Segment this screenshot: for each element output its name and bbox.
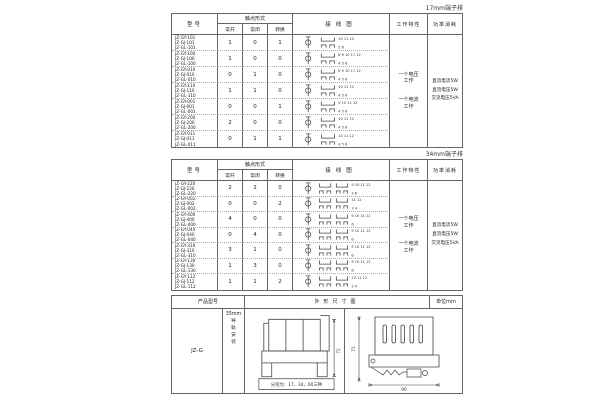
model-cell: JZ-GY-200JZ-GJ-200JZ-GL-200 (172, 115, 218, 131)
wiring-cell: 8 9 10 11 124 5 6 (293, 67, 390, 83)
wiring-cell: 8 9 10 11 124 5 6 (293, 51, 390, 67)
dimension-text: 3 6 (351, 191, 357, 195)
dimension-text: 10 11 12 (338, 117, 354, 121)
model-cell: JZ-GY-101JZ-GJ-101JZ-GL-101 (172, 35, 218, 51)
model-cell: JZ-GY-010JZ-GJ-010JZ-GL-010 (172, 67, 218, 83)
contact-form-header: 触点形式 (218, 160, 293, 170)
wiring-diagram-svg: 9 10 11 126 (294, 212, 389, 227)
contact-count-no: 3 (218, 243, 243, 259)
coil-icon (305, 37, 310, 48)
wiring-cell: 9 10 11 124 5 6 (293, 99, 390, 115)
contact-count-nc: 1 (243, 131, 268, 147)
model-cell: JZ-GY-040JZ-GJ-040JZ-GL-040 (172, 228, 218, 244)
contact-count-co: 1 (268, 99, 293, 115)
unit-header: 单位mm (430, 296, 462, 309)
contact-count-no: 0 (218, 228, 243, 244)
model-column-header: 型号 (172, 160, 218, 181)
mount-label-char: 导 (231, 318, 236, 325)
model-column-header: 型号 (172, 14, 218, 35)
model-number: JZ-GL-100 (175, 61, 196, 66)
dimension-text: 9 10 11 12 (351, 214, 370, 218)
screw-icon (371, 359, 375, 363)
contact-count-no: 2 (218, 181, 243, 197)
changeover-header: 转换 (268, 170, 293, 181)
dimension-text: 10 11 12 (338, 85, 354, 89)
model-cell: JZ-GY-130JZ-GJ-130JZ-GL-130 (172, 259, 218, 275)
coil-icon (305, 214, 310, 225)
page-content: 17mm端子排 型号触点形式常开常闭转换接线图工作特性功率消耗JZ-GY-101… (171, 4, 463, 394)
front-view-svg: 72分别为：17、34、60三种 (245, 309, 344, 393)
wiring-cell: 10 11 124 5 6 (293, 83, 390, 99)
wiring-diagram-header: 接线图 (293, 14, 390, 35)
contact-count-nc: 1 (243, 274, 268, 290)
contact-count-nc: 0 (243, 99, 268, 115)
model-cell: JZ-GY-310JZ-GJ-310JZ-GL-310 (172, 243, 218, 259)
wiring-cell: 9 10 11 126 (293, 243, 390, 259)
latch-screw-icon (423, 370, 428, 375)
coil-icon (305, 117, 310, 128)
contact-count-nc: 4 (243, 228, 268, 244)
contact-count-no: 1 (218, 259, 243, 275)
contact-count-co: 0 (268, 67, 293, 83)
work-characteristic-item: 一个电流工作 (399, 241, 419, 255)
power-consumption-item: 直流电压5W (432, 87, 458, 96)
contact-count-co: 0 (268, 51, 293, 67)
wiring-diagram-svg: 11 123 4 (294, 197, 389, 212)
model-number: JZ-GL-130 (175, 268, 196, 273)
dimension-text: 3 4 (351, 207, 357, 211)
wiring-diagram-svg: 10 11 124 5 6 (294, 83, 389, 98)
contact-count-co: 0 (268, 212, 293, 228)
power-consumption-item: 直流电流5W (432, 222, 458, 231)
dimension-text: 9 10 11 12 (351, 245, 370, 249)
dimension-text: 4 5 6 (338, 142, 348, 146)
power-consumption-header: 功率消耗 (428, 14, 462, 35)
contact-count-nc: 1 (243, 83, 268, 99)
power-consumption-item: 交流电压5VA (431, 95, 458, 104)
wiring-cell: 10 11 124 5 6 (293, 115, 390, 131)
contact-count-no: 0 (218, 99, 243, 115)
wiring-diagram-svg: 10 11 123 4 (294, 274, 389, 289)
dimension-text: 9 10 11 12 (351, 183, 370, 187)
contact-count-no: 0 (218, 131, 243, 147)
dimension-text: 8 9 10 11 12 (338, 53, 361, 57)
coil-icon (305, 276, 310, 287)
contact-count-co: 2 (268, 274, 293, 290)
model-number: JZ-GL-310 (175, 253, 196, 258)
coil-icon (305, 53, 310, 64)
dimension-text: 90 (401, 387, 407, 393)
dimension-drawing-header: 外形尺寸图 (245, 296, 430, 309)
dimension-text: 8 9 10 11 12 (338, 69, 361, 73)
wiring-diagram-svg: 9 10 11 126 (294, 259, 389, 274)
coil-icon (305, 245, 310, 256)
vent-slot (392, 325, 396, 343)
model-number: JZ-GL-101 (175, 45, 196, 50)
mount-width: 35mm (226, 311, 241, 318)
work-characteristic-cell: 一个电压工作一个电流工作 (390, 35, 428, 147)
wiring-diagram-svg: 8 9 10 11 124 5 6 (294, 67, 389, 82)
model-cell: JZ-GY-110JZ-GJ-110JZ-GL-110 (172, 83, 218, 99)
coil-icon (305, 101, 310, 112)
outline-table-header: 产品型号 外形尺寸图 单位mm (172, 296, 462, 309)
mount-label-char: 安 (231, 332, 236, 339)
product-model-value: JZ-G (172, 309, 223, 393)
dimension-text: 5 6 (338, 46, 344, 50)
side-view-drawing: 7190 (345, 309, 462, 393)
normally-open-header: 常开 (218, 24, 243, 35)
contact-form-header: 触点形式 (218, 14, 293, 24)
contact-count-no: 2 (218, 115, 243, 131)
wiring-diagram-svg: 10 11 124 5 6 (294, 115, 389, 130)
wiring-diagram-svg: 9 10 11 123 6 (294, 181, 389, 196)
dimension-text: 6 (351, 222, 354, 226)
mount-label-char: 轨 (231, 325, 236, 332)
model-cell: JZ-GY-100JZ-GJ-100JZ-GL-100 (172, 51, 218, 67)
power-consumption-item: 直流电压5W (432, 231, 458, 240)
dimension-text: 6 (351, 253, 354, 257)
model-cell: JZ-GY-011JZ-GJ-011JZ-GL-011 (172, 131, 218, 147)
wiring-cell: 10 11 125 6 (293, 35, 390, 51)
contact-count-no: 1 (218, 274, 243, 290)
dimension-text: 10 11 12 (338, 37, 354, 41)
vent-slot (401, 325, 405, 343)
wiring-cell: 9 10 11 126 (293, 259, 390, 275)
catalog-page: 17mm端子排 型号触点形式常开常闭转换接线图工作特性功率消耗JZ-GY-101… (0, 0, 600, 400)
model-cell: JZ-GY-220JZ-GJ-220JZ-GL-220 (172, 181, 218, 197)
vent-slot (419, 325, 423, 343)
outline-dimension-table: 产品型号 外形尺寸图 单位mm JZ-G 35mm导轨安装 72分别为：17、3… (171, 295, 463, 394)
model-number: JZ-GL-112 (175, 284, 196, 289)
dimension-text: 6 (351, 238, 354, 242)
model-number: JZ-GL-400 (175, 222, 196, 227)
normally-closed-header: 常闭 (243, 170, 268, 181)
contact-count-nc: 0 (243, 51, 268, 67)
power-consumption-cell: 直流电流5W直流电压5W交流电压5VA (428, 35, 462, 147)
wiring-diagram-svg: 9 10 11 124 5 6 (294, 99, 389, 114)
contact-count-nc: 0 (243, 115, 268, 131)
dimension-text: 6 (351, 269, 354, 273)
model-number: JZ-GL-110 (175, 93, 196, 98)
work-characteristic-item: 一个电流工作 (399, 97, 419, 111)
dimension-text: 9 10 11 12 (351, 229, 370, 233)
contact-count-no: 1 (218, 35, 243, 51)
power-consumption-header: 功率消耗 (428, 160, 462, 181)
model-cell: JZ-GY-400JZ-GJ-400JZ-GL-400 (172, 212, 218, 228)
dimension-text: 10 11 12 (351, 276, 367, 280)
dimension-text: 4 5 6 (338, 126, 348, 130)
contact-count-co: 0 (268, 243, 293, 259)
spec-table-17mm: 型号触点形式常开常闭转换接线图工作特性功率消耗JZ-GY-101JZ-GJ-10… (171, 13, 463, 148)
dimension-text: 10 11 12 (338, 134, 354, 138)
coil-icon (305, 198, 310, 209)
normally-closed-header: 常闭 (243, 24, 268, 35)
dimension-text: 9 10 11 12 (338, 101, 357, 105)
terminal-size-label-17mm: 17mm端子排 (171, 4, 463, 13)
contact-count-co: 0 (268, 228, 293, 244)
wiring-diagram-svg: 9 10 11 126 (294, 228, 389, 243)
mount-label-char: 装 (231, 339, 236, 346)
outline-table-body: JZ-G 35mm导轨安装 72分别为：17、34、60三种 7190 (172, 309, 462, 393)
dimension-text: 9 10 11 12 (351, 260, 370, 264)
contact-count-no: 1 (218, 83, 243, 99)
contact-count-co: 0 (268, 181, 293, 197)
coil-icon (305, 260, 310, 271)
work-characteristic-cell: 一个电压工作一个电流工作 (390, 181, 428, 290)
contact-count-nc: 0 (243, 197, 268, 213)
contact-count-nc: 3 (243, 259, 268, 275)
side-view-svg: 7190 (345, 309, 462, 393)
work-characteristic-item: 一个电压工作 (399, 72, 419, 86)
dimension-text: 11 12 (351, 198, 361, 202)
contact-count-no: 1 (218, 51, 243, 67)
contact-count-co: 1 (268, 131, 293, 147)
work-characteristic-header: 工作特性 (390, 14, 428, 35)
work-characteristic-item: 一个电压工作 (399, 216, 419, 230)
coil-icon (305, 133, 310, 144)
coil-icon (305, 85, 310, 96)
normally-open-header: 常开 (218, 170, 243, 181)
coil-icon (305, 69, 310, 80)
contact-count-co: 0 (268, 259, 293, 275)
model-number: JZ-GL-040 (175, 237, 196, 242)
work-characteristic-header: 工作特性 (390, 160, 428, 181)
model-number: JZ-GL-200 (175, 125, 196, 130)
wiring-diagram-header: 接线图 (293, 160, 390, 181)
coil-icon (305, 183, 310, 194)
mount-type-label: 35mm导轨安装 (223, 309, 245, 393)
model-number: JZ-GL-010 (175, 77, 196, 82)
contact-count-nc: 0 (243, 35, 268, 51)
wiring-diagram-svg: 8 9 10 11 124 5 6 (294, 51, 389, 66)
front-width-caption: 分别为：17、34、60三种 (271, 381, 323, 388)
dimension-text: 71 (351, 346, 356, 352)
model-cell: JZ-GY-112JZ-GJ-112JZ-GL-112 (172, 274, 218, 290)
wiring-cell: 9 10 11 126 (293, 228, 390, 244)
dimension-text: 4 5 6 (338, 110, 348, 114)
power-consumption-cell: 直流电流5W直流电压5W交流电压5VA (428, 181, 462, 290)
contact-count-nc: 2 (243, 181, 268, 197)
contact-count-no: 0 (218, 197, 243, 213)
product-model-header: 产品型号 (172, 296, 245, 309)
dimension-text: 4 5 6 (338, 78, 348, 82)
dimension-text: 72 (336, 348, 341, 354)
model-cell: JZ-GY-001JZ-GJ-001JZ-GL-001 (172, 99, 218, 115)
wiring-cell: 10 11 124 5 6 (293, 131, 390, 147)
contact-count-co: 1 (268, 35, 293, 51)
dimension-text: 4 5 6 (338, 94, 348, 98)
contact-count-co: 2 (268, 197, 293, 213)
changeover-header: 转换 (268, 24, 293, 35)
power-consumption-item: 交流电压5VA (431, 240, 458, 249)
contact-count-no: 4 (218, 212, 243, 228)
terminal-size-label-34mm: 34mm端子排 (171, 150, 463, 159)
wiring-cell: 11 123 4 (293, 197, 390, 213)
front-view-drawing: 72分别为：17、34、60三种 (245, 309, 345, 393)
wiring-cell: 10 11 123 4 (293, 274, 390, 290)
wiring-diagram-svg: 10 11 124 5 6 (294, 132, 389, 147)
model-number: JZ-GL-011 (175, 142, 196, 147)
coil-icon (305, 229, 310, 240)
contact-count-co: 0 (268, 83, 293, 99)
contact-count-no: 0 (218, 67, 243, 83)
dimension-text: 4 5 6 (338, 62, 348, 66)
vent-slot (410, 325, 414, 343)
spec-table-34mm: 型号触点形式常开常闭转换接线图工作特性功率消耗JZ-GY-220JZ-GJ-22… (171, 159, 463, 291)
contact-count-nc: 0 (243, 212, 268, 228)
model-number: JZ-GL-220 (175, 191, 196, 196)
model-number: JZ-GL-002 (175, 206, 196, 211)
dimension-text: 3 4 (351, 285, 357, 289)
contact-count-nc: 1 (243, 243, 268, 259)
contact-count-nc: 1 (243, 67, 268, 83)
model-number: JZ-GL-001 (175, 109, 196, 114)
model-cell: JZ-GY-002JZ-GJ-002JZ-GL-002 (172, 197, 218, 213)
wiring-cell: 9 10 11 126 (293, 212, 390, 228)
wiring-diagram-svg: 9 10 11 126 (294, 243, 389, 258)
vent-slot (383, 325, 387, 343)
wiring-cell: 9 10 11 123 6 (293, 181, 390, 197)
contact-count-co: 0 (268, 115, 293, 131)
power-consumption-item: 直流电流5W (432, 78, 458, 87)
wiring-diagram-svg: 10 11 125 6 (294, 35, 389, 50)
